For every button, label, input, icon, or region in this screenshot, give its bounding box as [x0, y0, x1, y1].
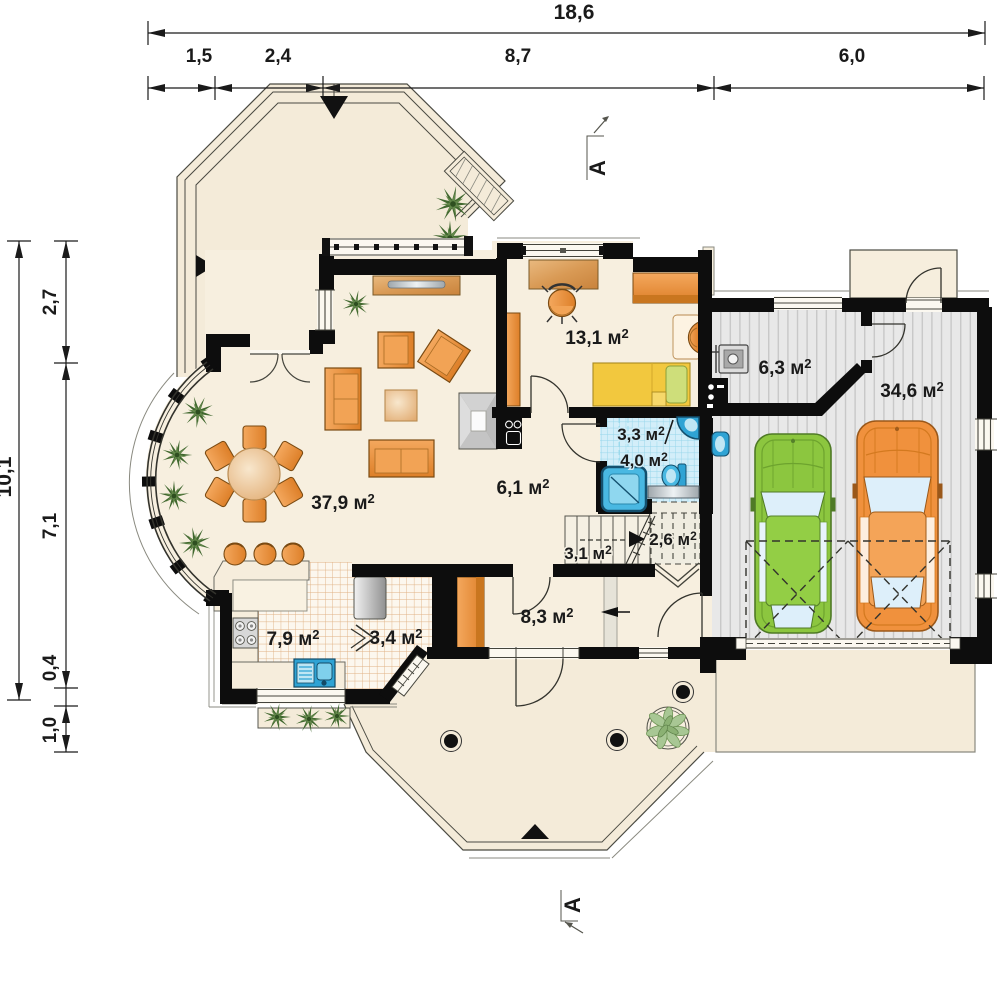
svg-text:6,1 м2: 6,1 м2	[497, 476, 550, 499]
svg-text:3,3 м2: 3,3 м2	[617, 424, 665, 444]
svg-text:2,4: 2,4	[265, 46, 292, 67]
svg-text:1,5: 1,5	[186, 46, 213, 67]
svg-text:8,7: 8,7	[505, 46, 531, 67]
svg-text:37,9 м2: 37,9 м2	[311, 491, 375, 514]
svg-text:34,6 м2: 34,6 м2	[880, 379, 944, 402]
svg-text:0,4: 0,4	[40, 654, 61, 681]
svg-text:2,7: 2,7	[40, 289, 61, 315]
svg-text:1,0: 1,0	[40, 717, 61, 743]
svg-text:4,0 м2: 4,0 м2	[620, 450, 668, 470]
svg-text:18,6: 18,6	[554, 1, 595, 24]
svg-text:6,0: 6,0	[839, 46, 865, 67]
svg-text:3,1 м2: 3,1 м2	[564, 543, 612, 563]
svg-text:7,9 м2: 7,9 м2	[267, 627, 320, 650]
svg-text:A: A	[560, 897, 585, 913]
svg-text:8,3 м2: 8,3 м2	[521, 605, 574, 628]
svg-text:3,4 м2: 3,4 м2	[370, 626, 423, 649]
svg-text:2,6 м2: 2,6 м2	[649, 529, 697, 549]
svg-text:6,3 м2: 6,3 м2	[759, 356, 812, 379]
svg-text:7,1: 7,1	[40, 512, 61, 539]
svg-text:13,1 м2: 13,1 м2	[565, 326, 629, 349]
svg-text:A: A	[585, 160, 610, 176]
svg-text:10,1: 10,1	[0, 456, 16, 497]
